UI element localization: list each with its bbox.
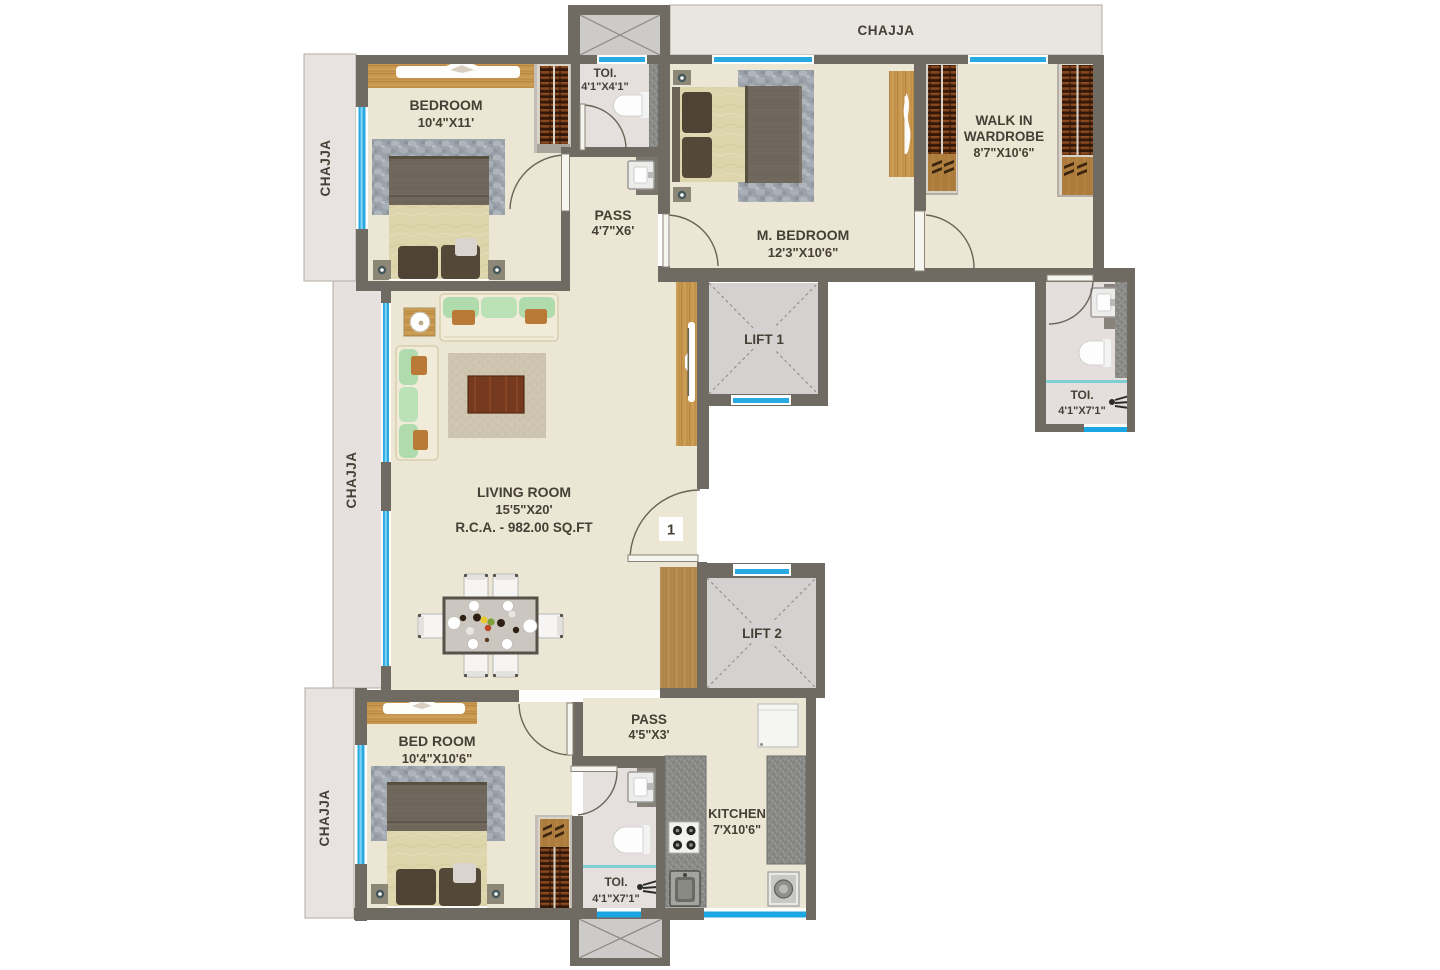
svg-text:4'5"X3': 4'5"X3' [628,728,669,742]
svg-text:PASS: PASS [631,712,667,727]
svg-text:WARDROBE: WARDROBE [964,129,1044,144]
svg-text:4'1"X7'1": 4'1"X7'1" [592,893,639,905]
svg-text:LIFT 1: LIFT 1 [744,332,784,347]
svg-text:8'7"X10'6": 8'7"X10'6" [974,146,1035,160]
svg-text:WALK IN: WALK IN [976,113,1033,128]
svg-text:M. BEDROOM: M. BEDROOM [757,227,850,243]
svg-text:TOI.: TOI. [604,875,627,889]
svg-text:BEDROOM: BEDROOM [409,97,482,113]
svg-text:4'1"X4'1": 4'1"X4'1" [581,81,628,93]
svg-text:KITCHEN: KITCHEN [708,806,766,821]
svg-text:7'X10'6": 7'X10'6" [713,823,761,837]
svg-text:BED ROOM: BED ROOM [399,733,476,749]
svg-text:10'4"X11': 10'4"X11' [418,115,474,130]
svg-text:CHAJJA: CHAJJA [857,23,914,38]
svg-text:15'5"X20': 15'5"X20' [495,502,552,517]
svg-text:CHAJJA: CHAJJA [318,139,333,196]
svg-text:PASS: PASS [594,207,631,223]
svg-text:12'3"X10'6": 12'3"X10'6" [768,245,839,260]
svg-text:CHAJJA: CHAJJA [344,451,359,508]
svg-text:10'4"X10'6": 10'4"X10'6" [402,751,473,766]
svg-text:R.C.A. - 982.00 SQ.FT: R.C.A. - 982.00 SQ.FT [455,520,593,535]
svg-text:1: 1 [667,523,675,539]
svg-text:CHAJJA: CHAJJA [317,789,332,846]
svg-text:TOI.: TOI. [1070,388,1093,402]
svg-text:TOI.: TOI. [593,66,616,80]
svg-text:4'1"X7'1": 4'1"X7'1" [1058,405,1105,417]
svg-text:LIVING ROOM: LIVING ROOM [477,484,571,500]
svg-text:4'7"X6': 4'7"X6' [592,223,635,238]
svg-text:LIFT 2: LIFT 2 [742,626,782,641]
